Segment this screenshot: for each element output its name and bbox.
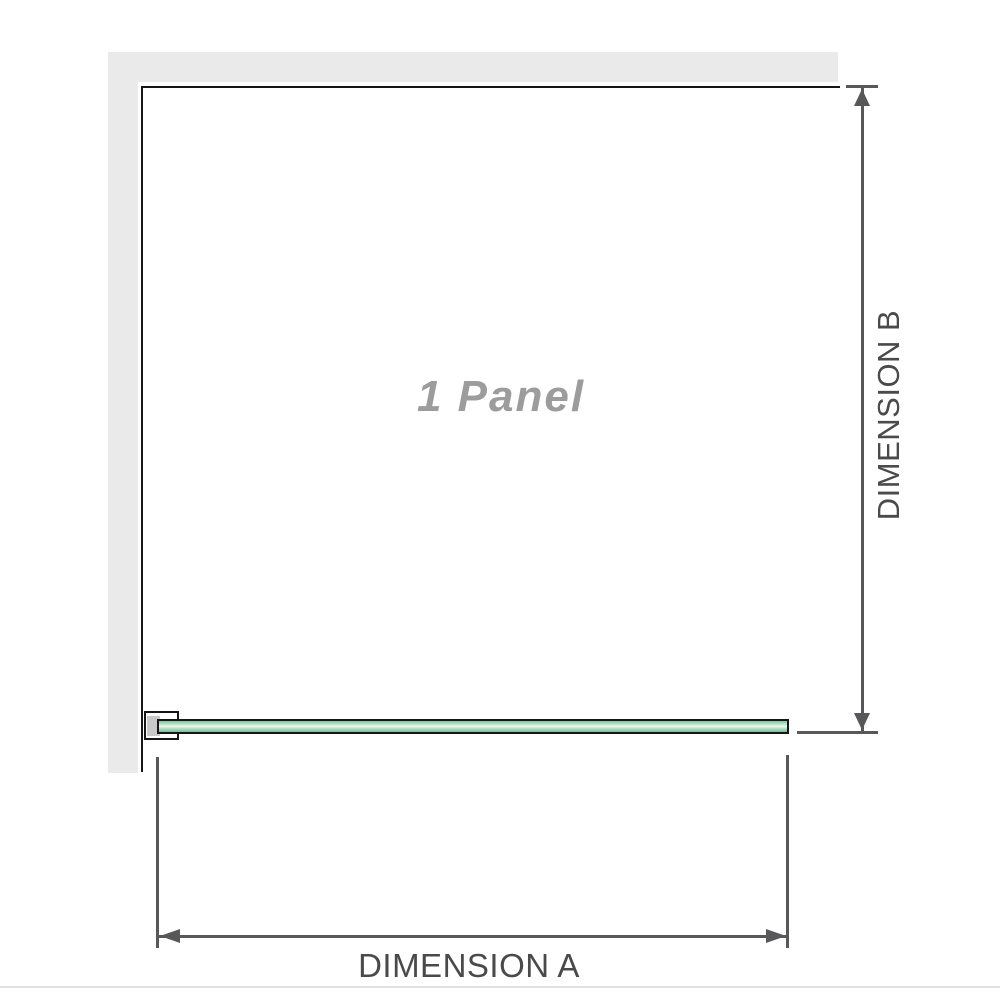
dimension-b-arrow-up-icon <box>854 89 870 106</box>
dimension-a-arrow-left-icon <box>160 929 180 943</box>
wall-left <box>108 52 138 773</box>
dimension-a-left-extension <box>156 757 159 948</box>
panel-label: 1 Panel <box>417 372 585 422</box>
dimension-b-arrow-down-icon <box>854 713 870 730</box>
wall-top <box>108 52 838 82</box>
dimension-a-right-extension <box>786 755 789 948</box>
dimension-b-line <box>861 88 864 731</box>
dimension-a-line <box>159 935 787 938</box>
dimension-a-arrow-right-icon <box>766 929 786 943</box>
dimension-b-bottom-tick <box>797 731 878 734</box>
glass-panel-bar <box>157 719 789 734</box>
panel-outline <box>141 86 840 772</box>
dimension-a-label: DIMENSION A <box>358 947 580 985</box>
dimension-b-label: DIMENSION B <box>871 310 907 520</box>
bottom-divider <box>0 986 1000 988</box>
